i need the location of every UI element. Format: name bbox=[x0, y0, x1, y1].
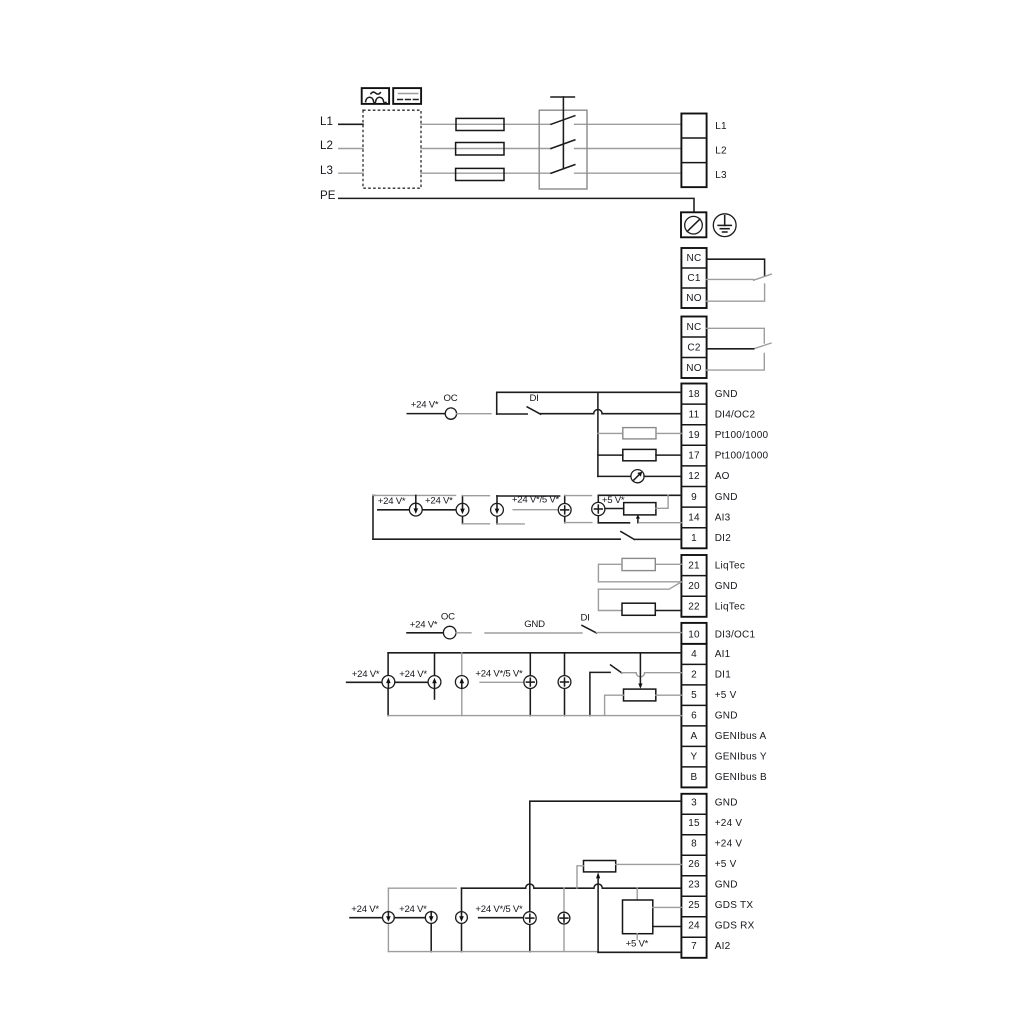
svg-text:+24 V*: +24 V* bbox=[425, 495, 453, 506]
svg-text:GENIbus B: GENIbus B bbox=[715, 772, 767, 783]
svg-text:NC: NC bbox=[687, 253, 702, 264]
svg-text:L3: L3 bbox=[715, 170, 727, 181]
svg-text:L1: L1 bbox=[320, 115, 333, 128]
svg-text:+24 V*: +24 V* bbox=[411, 400, 439, 411]
svg-text:+24 V*: +24 V* bbox=[378, 496, 406, 507]
svg-text:19: 19 bbox=[688, 430, 700, 441]
svg-text:L3: L3 bbox=[320, 164, 333, 177]
svg-text:+24 V*/5 V*: +24 V*/5 V* bbox=[475, 904, 523, 915]
svg-text:L1: L1 bbox=[715, 121, 727, 132]
svg-text:AI3: AI3 bbox=[715, 512, 731, 523]
svg-text:C1: C1 bbox=[687, 273, 700, 284]
svg-text:LiqTec: LiqTec bbox=[715, 560, 745, 571]
svg-text:DI1: DI1 bbox=[715, 670, 732, 681]
svg-text:OC: OC bbox=[444, 393, 458, 404]
svg-text:14: 14 bbox=[688, 512, 700, 523]
svg-text:GENIbus A: GENIbus A bbox=[715, 731, 767, 742]
svg-text:4: 4 bbox=[691, 649, 697, 660]
svg-text:+24 V*: +24 V* bbox=[351, 904, 379, 915]
svg-text:+5 V: +5 V bbox=[715, 690, 737, 701]
svg-text:DI4/OC2: DI4/OC2 bbox=[715, 409, 756, 420]
svg-text:8: 8 bbox=[691, 838, 697, 849]
svg-text:L2: L2 bbox=[715, 145, 727, 156]
svg-text:+24 V: +24 V bbox=[715, 838, 743, 849]
svg-text:+24 V*: +24 V* bbox=[399, 904, 427, 915]
svg-text:20: 20 bbox=[688, 581, 700, 592]
svg-text:Y: Y bbox=[691, 752, 698, 763]
svg-text:L2: L2 bbox=[320, 139, 333, 152]
svg-text:PE: PE bbox=[320, 189, 336, 202]
svg-text:22: 22 bbox=[688, 602, 700, 613]
svg-text:+24 V*/5 V*: +24 V*/5 V* bbox=[512, 495, 560, 506]
svg-text:LiqTec: LiqTec bbox=[715, 602, 745, 613]
svg-text:5: 5 bbox=[691, 690, 697, 701]
svg-text:23: 23 bbox=[688, 879, 700, 890]
svg-text:1: 1 bbox=[691, 533, 697, 544]
svg-text:26: 26 bbox=[688, 859, 700, 870]
svg-text:24: 24 bbox=[688, 920, 700, 931]
svg-text:3: 3 bbox=[691, 797, 697, 808]
svg-text:+24 V*: +24 V* bbox=[399, 669, 427, 680]
svg-text:NC: NC bbox=[687, 322, 702, 333]
svg-text:25: 25 bbox=[688, 900, 700, 911]
svg-text:Pt100/1000: Pt100/1000 bbox=[715, 430, 769, 441]
svg-text:+5 V*: +5 V* bbox=[626, 938, 649, 949]
svg-text:DI3/OC1: DI3/OC1 bbox=[715, 629, 756, 640]
svg-text:21: 21 bbox=[688, 560, 700, 571]
svg-text:GENIbus Y: GENIbus Y bbox=[715, 752, 767, 763]
svg-text:10: 10 bbox=[688, 629, 700, 640]
svg-text:11: 11 bbox=[689, 409, 700, 420]
svg-text:2: 2 bbox=[691, 670, 697, 681]
svg-text:GND: GND bbox=[524, 619, 545, 630]
svg-text:GDS RX: GDS RX bbox=[715, 920, 755, 931]
svg-text:+24 V*: +24 V* bbox=[410, 620, 438, 631]
svg-text:17: 17 bbox=[688, 451, 700, 462]
svg-text:NO: NO bbox=[686, 363, 702, 374]
svg-text:6: 6 bbox=[691, 711, 697, 722]
svg-text:+5 V: +5 V bbox=[715, 859, 737, 870]
svg-text:+24 V*: +24 V* bbox=[352, 669, 380, 680]
svg-text:GND: GND bbox=[715, 879, 738, 890]
svg-text:AI1: AI1 bbox=[715, 649, 731, 660]
svg-text:B: B bbox=[691, 772, 698, 783]
svg-text:DI: DI bbox=[530, 393, 539, 404]
svg-text:18: 18 bbox=[688, 389, 700, 400]
svg-text:DI: DI bbox=[581, 613, 590, 624]
svg-text:Pt100/1000: Pt100/1000 bbox=[715, 451, 769, 462]
svg-text:GDS TX: GDS TX bbox=[715, 900, 754, 911]
svg-text:+5 V*: +5 V* bbox=[602, 495, 625, 506]
svg-text:+24 V*/5 V*: +24 V*/5 V* bbox=[475, 669, 523, 680]
svg-text:12: 12 bbox=[688, 471, 700, 482]
svg-text:GND: GND bbox=[715, 389, 738, 400]
svg-text:AI2: AI2 bbox=[715, 941, 731, 952]
svg-text:A: A bbox=[691, 731, 698, 742]
svg-text:AO: AO bbox=[715, 471, 730, 482]
svg-text:C2: C2 bbox=[687, 342, 700, 353]
svg-text:+24 V: +24 V bbox=[715, 818, 743, 829]
svg-text:GND: GND bbox=[715, 797, 738, 808]
svg-text:DI2: DI2 bbox=[715, 533, 732, 544]
svg-text:9: 9 bbox=[691, 492, 697, 503]
svg-text:NO: NO bbox=[686, 293, 702, 304]
svg-text:GND: GND bbox=[715, 711, 738, 722]
svg-text:GND: GND bbox=[715, 492, 738, 503]
svg-text:7: 7 bbox=[691, 941, 697, 952]
svg-text:15: 15 bbox=[688, 818, 700, 829]
svg-text:OC: OC bbox=[441, 611, 455, 622]
svg-text:GND: GND bbox=[715, 581, 738, 592]
